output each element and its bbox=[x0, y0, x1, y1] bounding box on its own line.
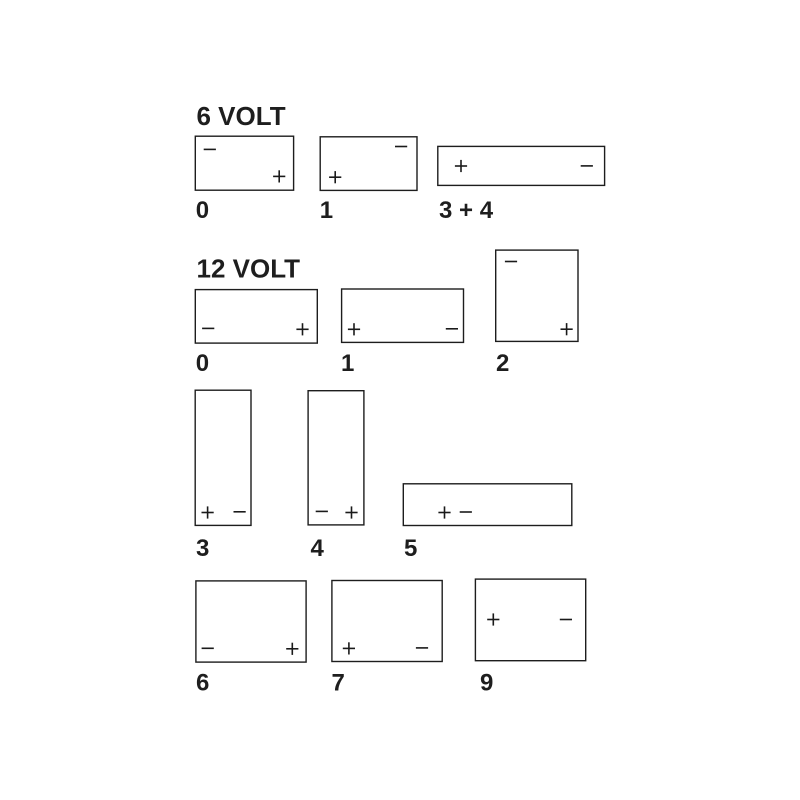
svg-text:6: 6 bbox=[196, 670, 209, 697]
svg-text:7: 7 bbox=[332, 670, 345, 697]
svg-text:12 VOLT: 12 VOLT bbox=[197, 254, 301, 284]
svg-text:0: 0 bbox=[196, 197, 209, 224]
svg-text:6 VOLT: 6 VOLT bbox=[197, 101, 286, 131]
svg-text:0: 0 bbox=[196, 350, 209, 377]
svg-text:4: 4 bbox=[311, 535, 325, 562]
svg-text:9: 9 bbox=[480, 670, 493, 697]
svg-text:1: 1 bbox=[320, 197, 333, 224]
svg-text:2: 2 bbox=[496, 350, 509, 377]
svg-text:5: 5 bbox=[404, 535, 417, 562]
svg-text:1: 1 bbox=[341, 350, 354, 377]
svg-text:3 + 4: 3 + 4 bbox=[439, 197, 494, 224]
svg-text:3: 3 bbox=[196, 535, 209, 562]
